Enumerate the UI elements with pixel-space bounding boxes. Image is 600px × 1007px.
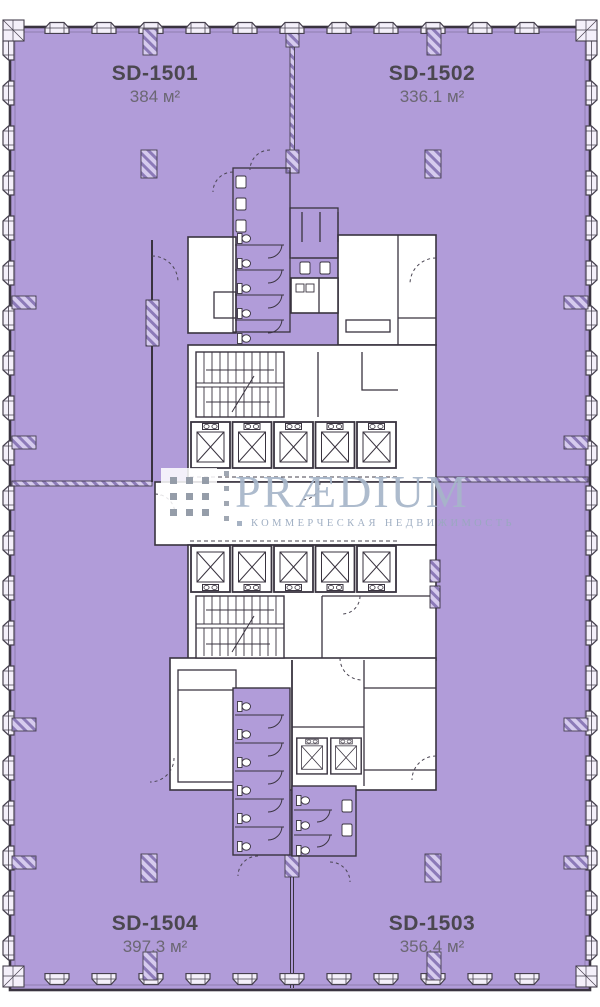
stairwell-upper <box>196 352 284 417</box>
floor-plan-drawing <box>0 0 600 1007</box>
stairwell-lower <box>196 596 284 658</box>
unit-id: SD-1503 <box>322 912 542 936</box>
unit-id: SD-1501 <box>45 62 265 86</box>
unit-label-sd-1502[interactable]: SD-1502 336.1 м² <box>322 62 542 107</box>
unit-area: 336.1 м² <box>322 87 542 107</box>
unit-label-sd-1504[interactable]: SD-1504 397.3 м² <box>45 912 265 957</box>
unit-area: 397.3 м² <box>45 937 265 957</box>
unit-label-sd-1501[interactable]: SD-1501 384 м² <box>45 62 265 107</box>
floor-plan-page: SD-1501 384 м² SD-1502 336.1 м² SD-1503 … <box>0 0 600 1007</box>
unit-id: SD-1504 <box>45 912 265 936</box>
unit-label-sd-1503[interactable]: SD-1503 356.4 м² <box>322 912 542 957</box>
unit-id: SD-1502 <box>322 62 542 86</box>
unit-area: 384 м² <box>45 87 265 107</box>
unit-area: 356.4 м² <box>322 937 542 957</box>
